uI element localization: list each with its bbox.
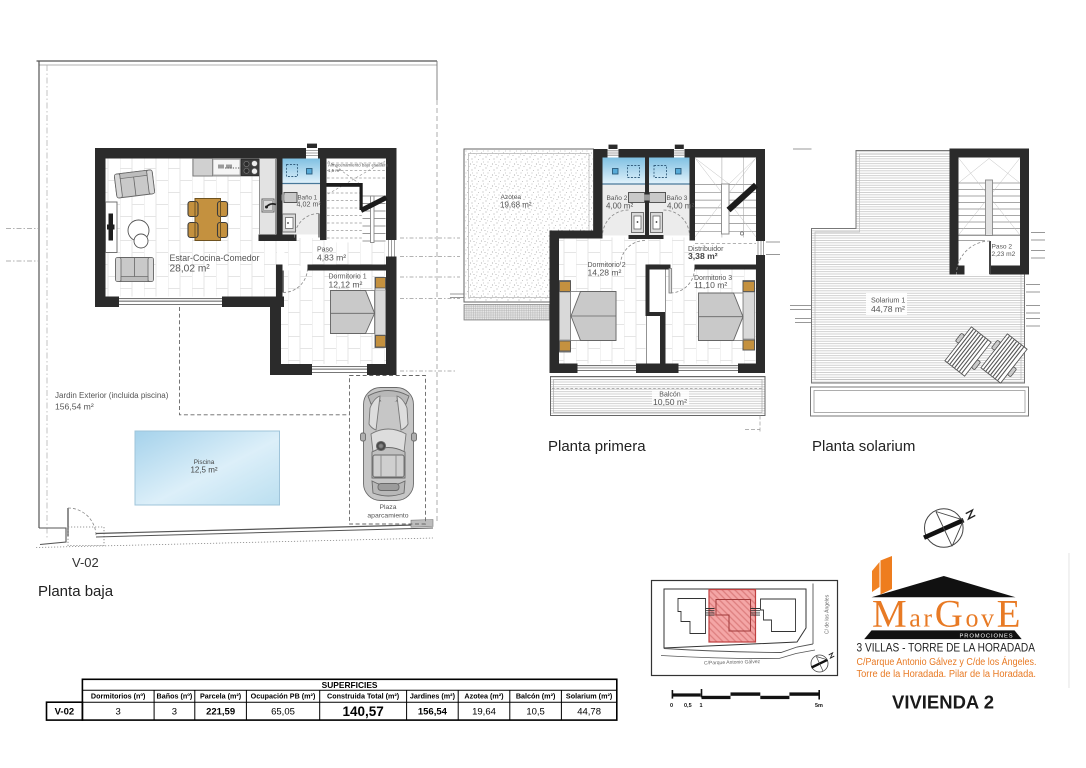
svg-text:3: 3 bbox=[116, 707, 121, 718]
svg-text:Paso 2: Paso 2 bbox=[992, 244, 1013, 251]
svg-text:C/ de los Ángeles: C/ de los Ángeles bbox=[824, 594, 831, 634]
svg-text:44,78: 44,78 bbox=[577, 707, 601, 718]
svg-text:3 VILLAS - TORRE DE LA HORADAD: 3 VILLAS - TORRE DE LA HORADADA bbox=[857, 641, 1036, 655]
svg-text:12,5 m²: 12,5 m² bbox=[190, 466, 217, 475]
svg-text:19,64: 19,64 bbox=[472, 707, 496, 718]
svg-text:VIVIENDA 2: VIVIENDA 2 bbox=[892, 693, 994, 713]
svg-text:221,59: 221,59 bbox=[206, 707, 235, 718]
svg-text:C/Parque Antonio Gálvez y C/de: C/Parque Antonio Gálvez y C/de los Ángel… bbox=[857, 655, 1037, 668]
svg-text:Planta solarium: Planta solarium bbox=[812, 438, 915, 455]
svg-text:Construida Total (m²): Construida Total (m²) bbox=[327, 692, 400, 701]
svg-text:3,38 m²: 3,38 m² bbox=[688, 251, 718, 261]
svg-text:Almacenamiento bajo escalera: Almacenamiento bajo escalera bbox=[328, 163, 389, 168]
svg-text:10,5: 10,5 bbox=[526, 707, 545, 718]
svg-text:Planta primera: Planta primera bbox=[548, 438, 646, 455]
svg-text:12,12 m²: 12,12 m² bbox=[329, 280, 363, 290]
svg-text:5m: 5m bbox=[815, 703, 823, 709]
svg-text:Baños (nº): Baños (nº) bbox=[157, 692, 193, 701]
svg-text:Planta baja: Planta baja bbox=[38, 583, 114, 600]
svg-text:140,57: 140,57 bbox=[342, 704, 383, 719]
svg-text:Solarium (m²): Solarium (m²) bbox=[566, 692, 613, 701]
svg-text:4,83 m²: 4,83 m² bbox=[317, 253, 346, 263]
svg-text:V-02: V-02 bbox=[72, 555, 99, 570]
svg-text:11,10 m²: 11,10 m² bbox=[694, 280, 727, 290]
svg-text:Jardin Exterior (incluida pisc: Jardin Exterior (incluida piscina) bbox=[55, 391, 169, 400]
svg-text:Azotea (m²): Azotea (m²) bbox=[464, 692, 504, 701]
svg-text:1: 1 bbox=[700, 703, 703, 709]
svg-text:Torre de la Horadada. Pilar de: Torre de la Horadada. Pilar de la Horada… bbox=[857, 669, 1037, 680]
svg-text:Parcela (m²): Parcela (m²) bbox=[200, 692, 242, 701]
svg-text:V-02: V-02 bbox=[55, 707, 75, 718]
svg-text:156,54: 156,54 bbox=[418, 707, 448, 718]
svg-text:Dormitorios (nº): Dormitorios (nº) bbox=[91, 692, 146, 701]
svg-text:MarGovE: MarGovE bbox=[872, 593, 1023, 636]
svg-text:28,02 m²: 28,02 m² bbox=[170, 264, 211, 275]
svg-text:SUPERFICIES: SUPERFICIES bbox=[322, 680, 378, 690]
svg-text:Jardines (m²): Jardines (m²) bbox=[410, 692, 456, 701]
svg-text:156,54 m²: 156,54 m² bbox=[55, 402, 94, 412]
svg-text:0: 0 bbox=[670, 703, 673, 709]
svg-text:14,28 m²: 14,28 m² bbox=[588, 268, 622, 278]
svg-text:Balcón (m²): Balcón (m²) bbox=[516, 692, 556, 701]
svg-text:10,50 m²: 10,50 m² bbox=[653, 397, 687, 407]
svg-text:4,00 m²: 4,00 m² bbox=[667, 202, 694, 211]
svg-text:4,02 m²: 4,02 m² bbox=[297, 200, 322, 209]
svg-text:0,5: 0,5 bbox=[684, 703, 692, 709]
svg-text:Ocupación PB (m²): Ocupación PB (m²) bbox=[251, 692, 316, 701]
svg-text:65,05: 65,05 bbox=[271, 707, 295, 718]
svg-text:44,78 m²: 44,78 m² bbox=[871, 304, 905, 314]
svg-text:aparcamiento: aparcamiento bbox=[367, 513, 408, 520]
svg-text:Plaza: Plaza bbox=[379, 504, 396, 511]
svg-text:1,5 m²: 1,5 m² bbox=[328, 168, 341, 173]
svg-text:2,23 m2: 2,23 m2 bbox=[992, 251, 1016, 258]
svg-text:PROMOCIONES: PROMOCIONES bbox=[959, 634, 1013, 640]
svg-text:Estar-Cocina-Comedor: Estar-Cocina-Comedor bbox=[170, 253, 260, 263]
svg-text:4,00 m²: 4,00 m² bbox=[606, 202, 633, 211]
svg-text:19,68 m²: 19,68 m² bbox=[500, 201, 532, 210]
svg-text:3: 3 bbox=[172, 707, 177, 718]
